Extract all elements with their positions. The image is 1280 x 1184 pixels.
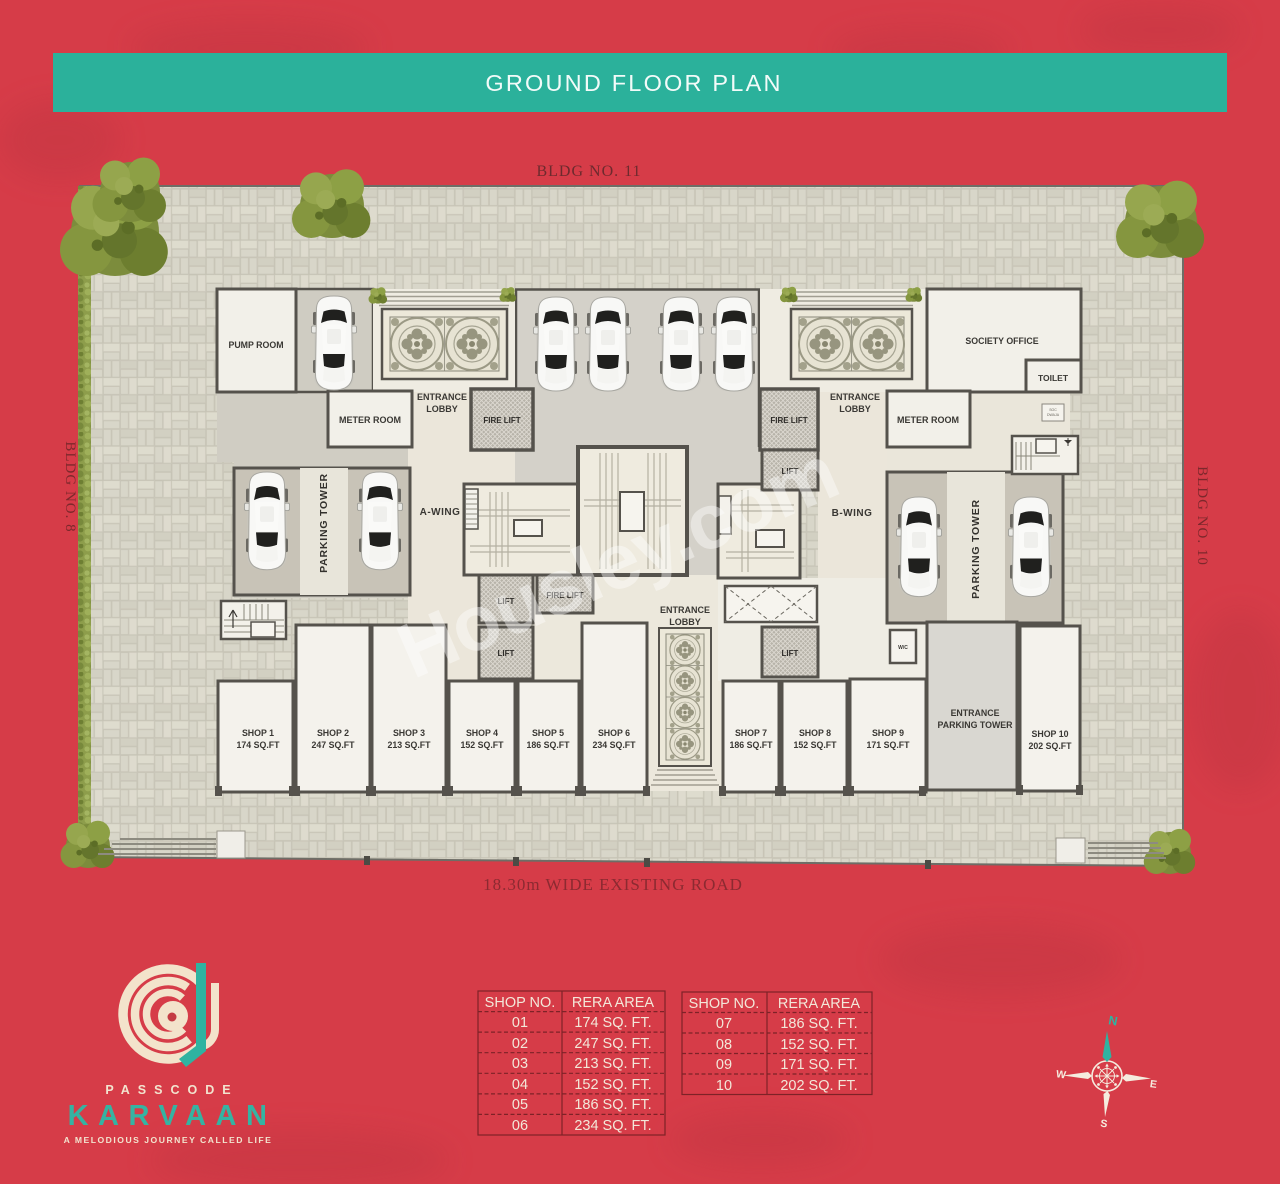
svg-text:171 SQ.FT: 171 SQ.FT	[866, 740, 910, 750]
svg-text:A-WING: A-WING	[420, 507, 461, 518]
svg-text:PASSCODE: PASSCODE	[105, 1083, 238, 1097]
svg-text:152 SQ. FT.: 152 SQ. FT.	[780, 1037, 857, 1053]
svg-text:03: 03	[512, 1056, 528, 1072]
svg-text:SHOP 5: SHOP 5	[532, 728, 564, 738]
svg-text:KARVAAN: KARVAAN	[68, 1100, 277, 1132]
svg-text:152 SQ.FT: 152 SQ.FT	[793, 740, 837, 750]
svg-text:PARKING TOWER: PARKING TOWER	[970, 499, 982, 599]
svg-text:08: 08	[716, 1037, 732, 1053]
svg-text:SOCIETY OFFICE: SOCIETY OFFICE	[965, 336, 1038, 346]
svg-text:W/C: W/C	[898, 645, 908, 651]
svg-text:247 SQ. FT.: 247 SQ. FT.	[574, 1036, 651, 1052]
svg-text:05: 05	[512, 1097, 528, 1113]
svg-text:171 SQ. FT.: 171 SQ. FT.	[780, 1057, 857, 1073]
svg-text:TOILET: TOILET	[1038, 373, 1069, 383]
svg-text:202 SQ.FT: 202 SQ.FT	[1028, 741, 1072, 751]
svg-text:213 SQ.FT: 213 SQ.FT	[387, 740, 431, 750]
svg-text:04: 04	[512, 1077, 528, 1093]
svg-text:DWAJA: DWAJA	[1047, 413, 1060, 417]
svg-text:FIRE LIFT: FIRE LIFT	[483, 416, 520, 425]
svg-text:LOBBY: LOBBY	[426, 404, 458, 414]
svg-text:SHOP 1: SHOP 1	[242, 728, 274, 738]
svg-text:LOBBY: LOBBY	[839, 404, 871, 414]
svg-text:SHOP 8: SHOP 8	[799, 728, 831, 738]
svg-text:PARKING TOWER: PARKING TOWER	[318, 473, 330, 573]
svg-text:SHOP 4: SHOP 4	[466, 728, 498, 738]
svg-text:186 SQ. FT.: 186 SQ. FT.	[574, 1097, 651, 1113]
svg-text:02: 02	[512, 1036, 528, 1052]
svg-text:10: 10	[716, 1078, 732, 1094]
svg-text:BLDG NO. 11: BLDG NO. 11	[536, 163, 641, 180]
svg-text:152 SQ.FT: 152 SQ.FT	[460, 740, 504, 750]
svg-text:186 SQ.FT: 186 SQ.FT	[526, 740, 570, 750]
svg-text:234 SQ. FT.: 234 SQ. FT.	[574, 1118, 651, 1134]
svg-text:METER ROOM: METER ROOM	[339, 415, 401, 425]
svg-text:METER ROOM: METER ROOM	[897, 415, 959, 425]
svg-text:SHOP 10: SHOP 10	[1031, 729, 1068, 739]
svg-text:LOBBY: LOBBY	[669, 617, 701, 627]
svg-text:BLDG NO. 8: BLDG NO. 8	[62, 441, 78, 532]
svg-text:LIFT: LIFT	[782, 649, 799, 658]
svg-text:07: 07	[716, 1016, 732, 1032]
svg-text:A MELODIOUS JOURNEY CALLED LIF: A MELODIOUS JOURNEY CALLED LIFE	[64, 1135, 273, 1145]
svg-text:SHOP 2: SHOP 2	[317, 728, 349, 738]
svg-text:247 SQ.FT: 247 SQ.FT	[311, 740, 355, 750]
svg-text:ENTRANCE: ENTRANCE	[830, 392, 880, 402]
svg-text:SHOP 3: SHOP 3	[393, 728, 425, 738]
svg-text:BLDG NO. 10: BLDG NO. 10	[1194, 466, 1210, 566]
svg-text:174 SQ. FT.: 174 SQ. FT.	[574, 1015, 651, 1031]
svg-text:GROUND FLOOR PLAN: GROUND FLOOR PLAN	[485, 70, 782, 96]
svg-text:09: 09	[716, 1057, 732, 1073]
svg-text:RERA AREA: RERA AREA	[778, 996, 861, 1012]
svg-text:SHOP NO.: SHOP NO.	[485, 995, 556, 1011]
svg-text:ENTRANCE: ENTRANCE	[660, 605, 710, 615]
svg-text:FIRE LIFT: FIRE LIFT	[770, 416, 807, 425]
svg-text:06: 06	[512, 1118, 528, 1134]
svg-text:234 SQ.FT: 234 SQ.FT	[592, 740, 636, 750]
svg-text:213 SQ. FT.: 213 SQ. FT.	[574, 1056, 651, 1072]
svg-text:PUMP ROOM: PUMP ROOM	[228, 340, 283, 350]
svg-text:RERA AREA: RERA AREA	[572, 995, 655, 1011]
svg-text:01: 01	[512, 1015, 528, 1031]
svg-text:186 SQ. FT.: 186 SQ. FT.	[780, 1016, 857, 1032]
svg-text:ENTRANCE: ENTRANCE	[417, 392, 467, 402]
svg-text:174 SQ.FT: 174 SQ.FT	[236, 740, 280, 750]
svg-text:ENTRANCE: ENTRANCE	[951, 708, 1000, 718]
svg-text:PARKING TOWER: PARKING TOWER	[938, 720, 1014, 730]
svg-text:202 SQ. FT.: 202 SQ. FT.	[780, 1078, 857, 1094]
svg-text:W: W	[1055, 1068, 1067, 1081]
svg-text:152 SQ. FT.: 152 SQ. FT.	[574, 1077, 651, 1093]
svg-text:SHOP 6: SHOP 6	[598, 728, 630, 738]
svg-text:186 SQ.FT: 186 SQ.FT	[729, 740, 773, 750]
svg-text:18.30m WIDE EXISTING ROAD: 18.30m WIDE EXISTING ROAD	[483, 875, 743, 894]
svg-text:SHOP 7: SHOP 7	[735, 728, 767, 738]
svg-text:SHOP 9: SHOP 9	[872, 728, 904, 738]
svg-text:SHOP NO.: SHOP NO.	[689, 996, 760, 1012]
svg-text:SOC: SOC	[1049, 408, 1057, 412]
